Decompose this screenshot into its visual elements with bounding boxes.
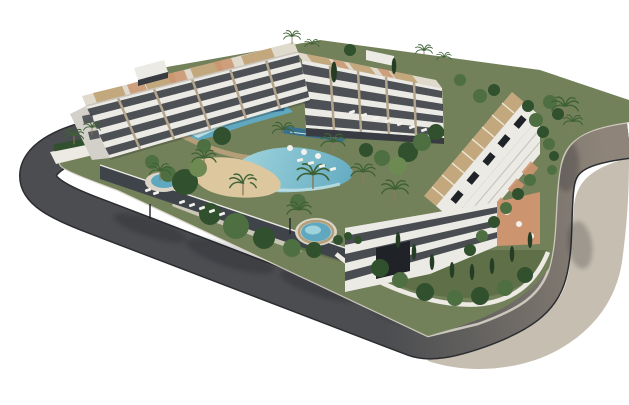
architectural-render (0, 0, 629, 405)
jacuzzi-pool (295, 218, 337, 246)
